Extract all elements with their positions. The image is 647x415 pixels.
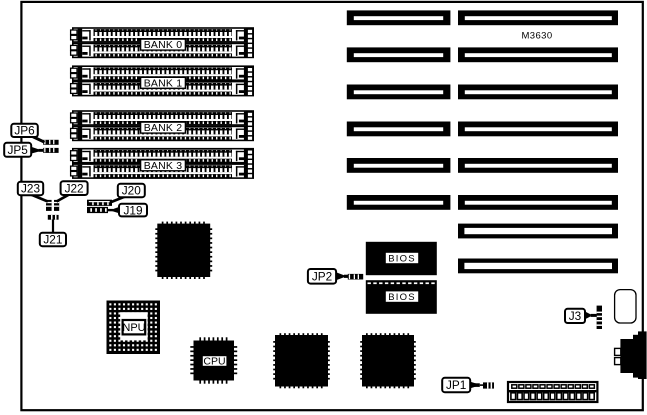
svg-text:J23: J23 xyxy=(21,182,40,196)
svg-text:BANK 2: BANK 2 xyxy=(144,122,183,134)
svg-text:BANK 0: BANK 0 xyxy=(144,39,183,51)
svg-text:BIOS: BIOS xyxy=(388,292,416,303)
svg-text:CPU: CPU xyxy=(203,356,225,368)
svg-text:J21: J21 xyxy=(43,233,62,247)
svg-text:NPU: NPU xyxy=(122,322,145,334)
svg-text:JP6: JP6 xyxy=(14,124,35,138)
svg-text:BANK 3: BANK 3 xyxy=(144,160,183,172)
svg-text:J22: J22 xyxy=(65,181,84,195)
svg-text:BANK 1: BANK 1 xyxy=(144,77,183,89)
svg-text:J19: J19 xyxy=(123,203,142,217)
svg-text:JP5: JP5 xyxy=(8,143,29,157)
svg-text:JP1: JP1 xyxy=(446,378,466,392)
svg-text:J20: J20 xyxy=(122,184,141,198)
svg-text:M3630: M3630 xyxy=(521,31,552,42)
svg-text:JP2: JP2 xyxy=(312,270,332,284)
svg-text:J3: J3 xyxy=(569,309,582,323)
svg-text:BIOS: BIOS xyxy=(388,253,416,264)
